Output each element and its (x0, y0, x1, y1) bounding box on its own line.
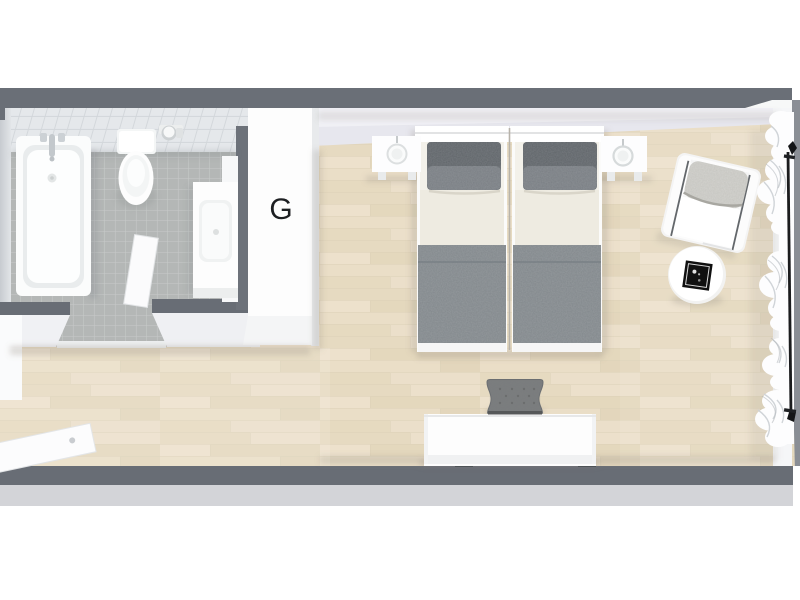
svg-text:G: G (269, 193, 292, 226)
